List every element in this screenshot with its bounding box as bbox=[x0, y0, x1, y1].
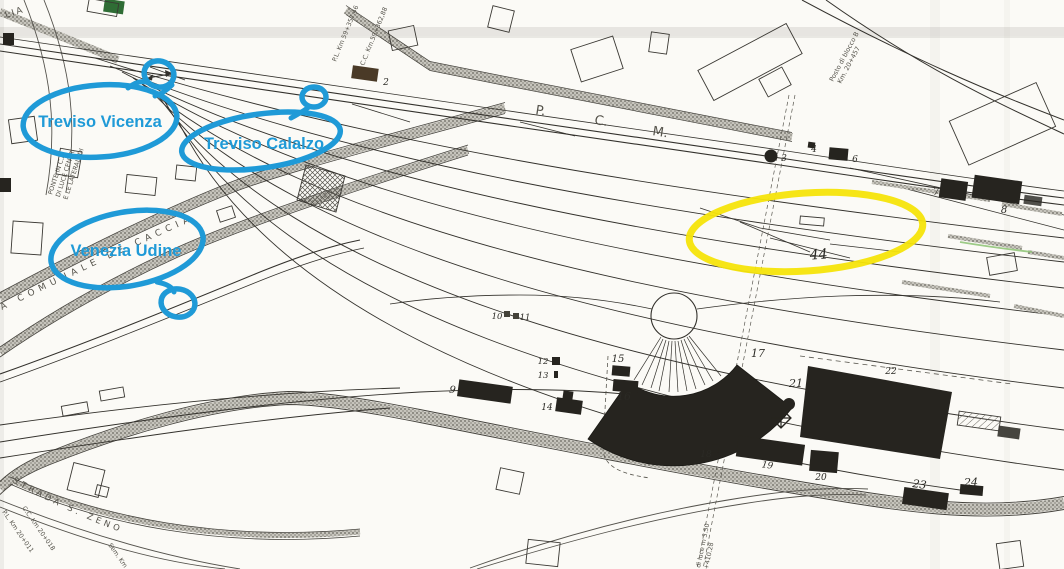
marker-8: 8 bbox=[1001, 205, 1007, 216]
yellow-highlight-ellipse bbox=[687, 185, 926, 279]
scanned-track-plan: LIA PONTE IN C.A. DI LUCE CENTR. E LE LA… bbox=[0, 0, 1064, 569]
marker-14: 14 bbox=[541, 403, 553, 413]
annotation-treviso-vicenza bbox=[21, 58, 180, 163]
marker-4: 4 bbox=[810, 145, 817, 155]
marker-3: 3 bbox=[781, 154, 787, 164]
label-pcm-c: C. bbox=[593, 113, 608, 130]
annotation-label-venezia-udine: Venezia Udine bbox=[71, 242, 182, 260]
marker-18: 18 bbox=[700, 450, 712, 460]
annotation-label-treviso-calalzo: Treviso Calalzo bbox=[204, 135, 324, 153]
label-sem: Sem. Km bbox=[106, 542, 128, 569]
large-depot-building bbox=[800, 366, 952, 459]
brown-building bbox=[351, 65, 379, 81]
marker-2: 2 bbox=[382, 78, 389, 88]
marker-22: 22 bbox=[884, 367, 897, 377]
marker-19: 19 bbox=[761, 460, 774, 472]
marker-12: 12 bbox=[538, 357, 549, 367]
marker-20: 20 bbox=[814, 473, 827, 483]
marker-11: 11 bbox=[520, 313, 531, 323]
marker-13: 13 bbox=[538, 371, 549, 381]
turntable-circle bbox=[651, 293, 697, 339]
marker-44: 44 bbox=[808, 246, 828, 263]
annotation-pointer-circle bbox=[159, 286, 197, 319]
signal-dot bbox=[765, 150, 778, 163]
green-building bbox=[103, 0, 125, 14]
marker-15: 15 bbox=[612, 354, 625, 365]
marker-16: 16 bbox=[617, 390, 631, 403]
marker-6: 6 bbox=[852, 155, 858, 165]
marker-17: 17 bbox=[751, 347, 765, 360]
marker-21: 21 bbox=[788, 377, 803, 390]
dashed-lines bbox=[603, 95, 1012, 569]
marker-7: 7 bbox=[933, 187, 940, 198]
label-pcm-m: M. bbox=[651, 124, 669, 141]
track-plan-svg: LIA PONTE IN C.A. DI LUCE CENTR. E LE LA… bbox=[0, 0, 1064, 569]
label-pcm-p: P. bbox=[534, 103, 546, 119]
marker-23: 23 bbox=[911, 477, 928, 492]
marker-10: 10 bbox=[492, 312, 503, 322]
annotation-label-treviso-vicenza: Treviso Vicenza bbox=[38, 113, 162, 131]
blue-annotation-texts: Treviso Vicenza Treviso Calalzo Venezia … bbox=[38, 113, 324, 260]
label-strada-zeno: STRADA S. ZENO bbox=[11, 476, 125, 535]
marker-24: 24 bbox=[963, 476, 978, 489]
yellow-highlight bbox=[687, 185, 926, 279]
label-strada-caccia: A COMUNALE DE CACCIA bbox=[0, 214, 195, 313]
